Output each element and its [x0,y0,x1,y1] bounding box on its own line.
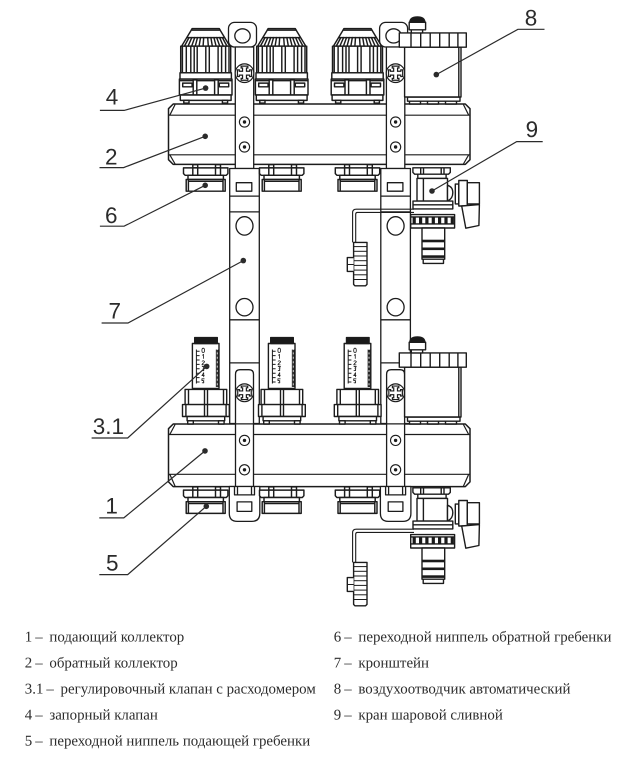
svg-text:5 – переходной ниппель подающ: 5 – переходной ниппель подающей гребенки [25,734,310,750]
svg-text:4: 4 [106,85,119,110]
svg-text:6 – переходной ниппель обратн: 6 – переходной ниппель обратной гребенки [334,630,612,646]
svg-text:3.1 – регулировочный клапан с: 3.1 – регулировочный клапан с расходомер… [25,682,317,698]
svg-text:8 – воздухоотводчик автоматич: 8 – воздухоотводчик автоматический [334,682,571,698]
svg-text:9 – кран шаровой сливной: 9 – кран шаровой сливной [334,708,503,724]
svg-text:9: 9 [526,117,539,142]
svg-text:5: 5 [106,550,119,575]
svg-text:2 – обратный коллектор: 2 – обратный коллектор [25,656,178,672]
svg-text:3.1: 3.1 [93,414,124,439]
svg-text:7 – кронштейн: 7 – кронштейн [334,656,429,672]
svg-text:2: 2 [105,144,118,169]
svg-text:7: 7 [109,299,122,324]
svg-text:4 – запорный клапан: 4 – запорный клапан [25,708,158,724]
svg-text:8: 8 [525,5,538,30]
svg-text:6: 6 [105,203,118,228]
svg-text:1 – подающий коллектор: 1 – подающий коллектор [25,630,184,646]
svg-text:1: 1 [105,494,118,519]
